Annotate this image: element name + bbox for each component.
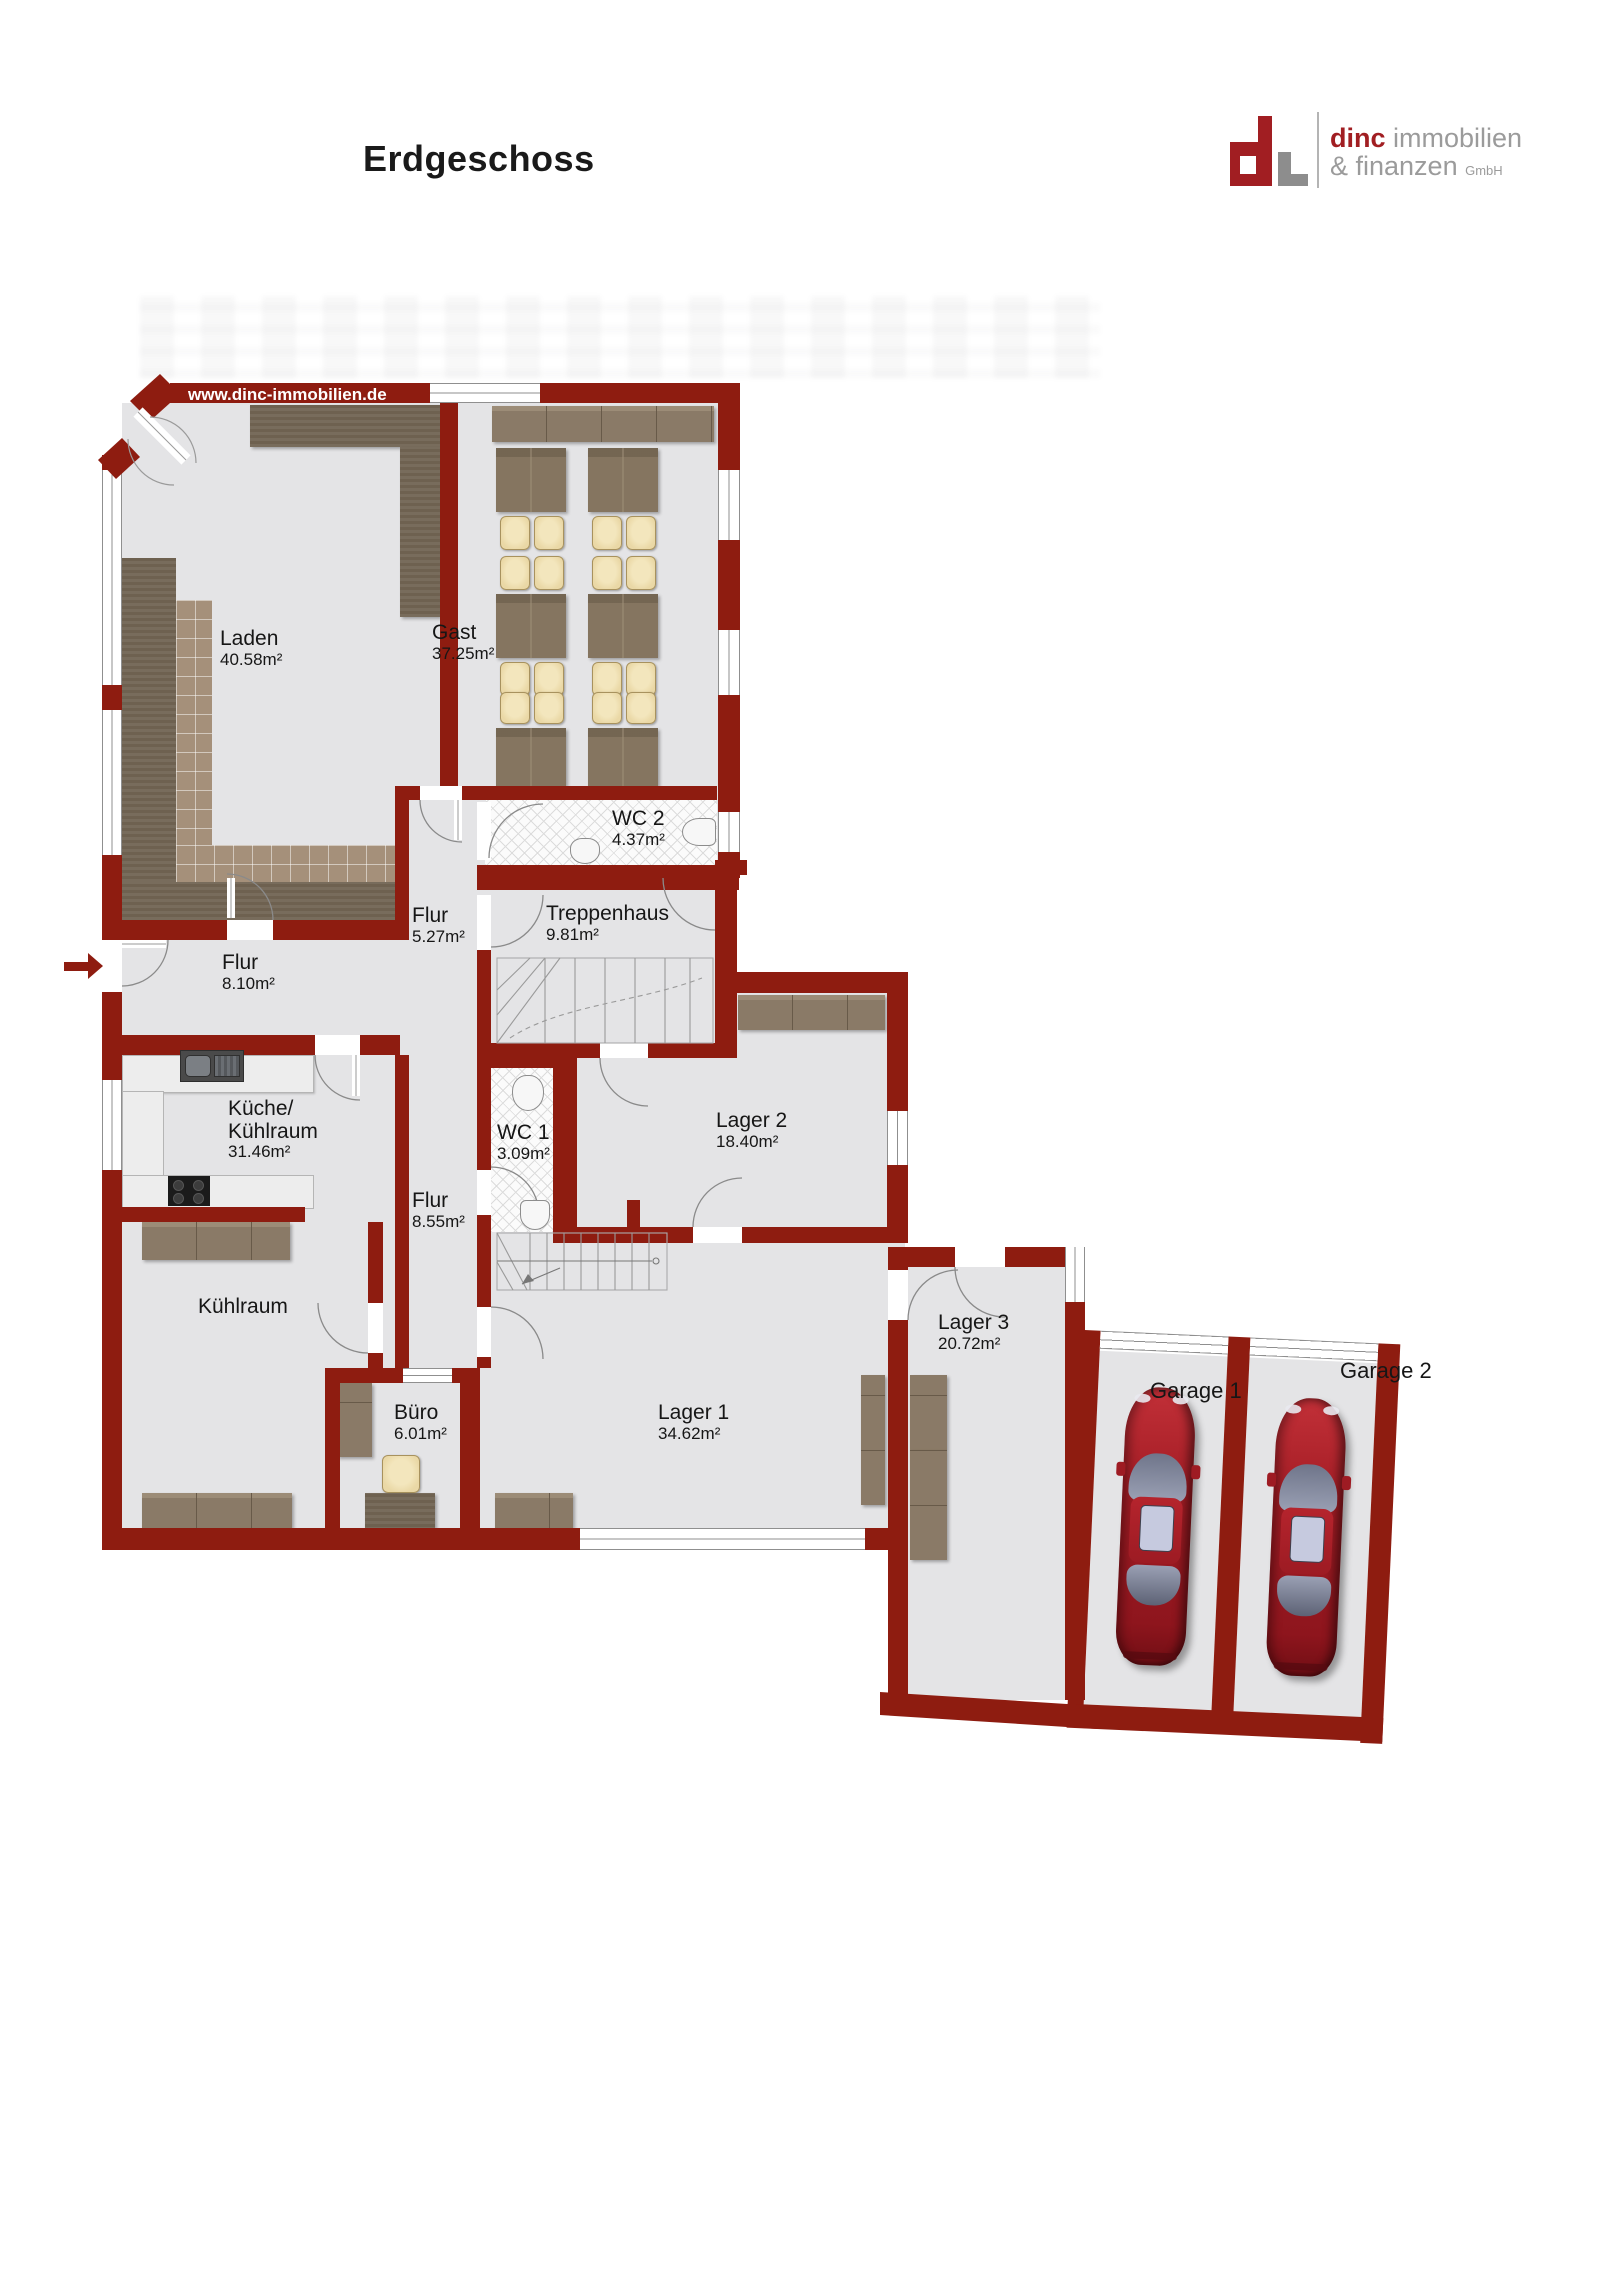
buero-window	[403, 1368, 452, 1383]
room-name: Treppenhaus	[546, 903, 669, 926]
room-label-gast: Gast 37.25m²	[432, 622, 494, 663]
chair	[626, 692, 656, 724]
kitchen-counter-left	[122, 1091, 164, 1177]
wall	[325, 1368, 403, 1383]
logo-suffix: GmbH	[1465, 163, 1503, 178]
room-area: 34.62m²	[658, 1425, 729, 1443]
room-name: Flur	[412, 1190, 465, 1213]
kitchen-sink-unit	[180, 1050, 244, 1082]
chair	[626, 556, 656, 590]
wc1-toilet	[512, 1075, 544, 1111]
sink-basin	[185, 1055, 211, 1077]
logo-brand-rest: immobilien	[1393, 123, 1522, 153]
door-threshold	[315, 1035, 360, 1055]
wall	[553, 1227, 693, 1243]
entry-door-threshold	[102, 940, 122, 992]
room-area: 5.27m²	[412, 928, 465, 946]
wall-buero-right	[460, 1383, 480, 1533]
room-label-kueche: Küche/ Kühlraum 31.46m²	[228, 1098, 318, 1162]
car-mirror	[1191, 1465, 1201, 1479]
chair	[592, 516, 622, 550]
laden-counter-bottom	[122, 882, 400, 920]
wall-buero-left	[325, 1383, 340, 1533]
lager2-cabinet	[738, 995, 885, 1030]
window	[102, 1080, 122, 1170]
window	[887, 1111, 908, 1165]
logo-icon-square-hole	[1240, 156, 1256, 174]
chair	[534, 662, 564, 696]
room-label-flur-eingang: Flur 8.10m²	[222, 952, 275, 993]
room-label-flur-og: Flur 5.27m²	[412, 905, 465, 946]
room-name: Flur	[222, 952, 275, 975]
room-name: Gast	[432, 622, 494, 645]
gast-table	[588, 728, 658, 786]
room-label-garage1: Garage 1	[1150, 1378, 1242, 1404]
wall-wc2-bottom	[477, 865, 739, 890]
chair	[500, 692, 530, 724]
room-name: Laden	[220, 628, 282, 651]
room-area: 31.46m²	[228, 1143, 318, 1161]
buero-chair	[382, 1455, 420, 1493]
room-name: Büro	[394, 1402, 447, 1425]
room-area: 9.81m²	[546, 926, 669, 944]
sink-drainer	[214, 1055, 240, 1077]
laden-counter-left	[122, 558, 176, 882]
window	[1065, 1247, 1085, 1302]
wc2-sink	[570, 838, 600, 864]
wall-wc1-right	[553, 1055, 577, 1232]
room-name: WC 2	[612, 808, 665, 831]
logo-line2: & finanzen	[1330, 151, 1458, 181]
wall	[865, 1528, 888, 1550]
car	[1265, 1397, 1348, 1678]
wall-lager1-lager3	[888, 1320, 908, 1710]
garage-block	[1066, 1322, 1425, 1757]
lager3-shelf-a	[910, 1375, 947, 1450]
logo-icon-l-foot	[1278, 174, 1308, 186]
chair	[534, 692, 564, 724]
burner	[173, 1193, 184, 1204]
wc1-sink	[520, 1200, 550, 1230]
chair	[500, 556, 530, 590]
wall	[462, 786, 717, 800]
chair	[534, 556, 564, 590]
gast-table	[588, 594, 658, 658]
wall	[452, 1368, 480, 1383]
window	[430, 383, 540, 403]
gast-table	[496, 728, 566, 786]
chair	[592, 662, 622, 696]
wall-treppenhaus-right	[715, 860, 737, 1043]
buero-desk	[365, 1493, 435, 1530]
door-threshold	[227, 920, 273, 940]
logo-brand: dinc	[1330, 123, 1386, 153]
room-area: 20.72m²	[938, 1335, 1009, 1353]
room-label-kuehlraum: Kühlraum	[198, 1296, 288, 1319]
company-logo-icon	[1230, 116, 1300, 188]
wall	[485, 1043, 600, 1058]
wall	[718, 695, 740, 812]
door-threshold	[420, 786, 462, 800]
gast-wall-cabinets	[492, 406, 714, 442]
wall-kueche-kuehlraum	[102, 1207, 305, 1222]
wall	[742, 1227, 908, 1243]
faded-artifact-band	[140, 296, 1100, 378]
watermark-url: www.dinc-immobilien.de	[188, 385, 387, 405]
wall	[368, 1353, 383, 1368]
wall-lager3-right	[1065, 1302, 1085, 1700]
wall	[102, 920, 227, 940]
chair	[500, 516, 530, 550]
gast-table	[496, 594, 566, 658]
wall	[102, 992, 122, 1080]
company-logo-text: dinc immobilien & finanzen GmbH	[1330, 124, 1522, 181]
room-area: 3.09m²	[497, 1145, 550, 1163]
wall-lager2-top	[737, 972, 908, 993]
kuehlraum-shelf-top	[142, 1222, 290, 1260]
gast-table	[588, 448, 658, 512]
wall	[273, 920, 409, 940]
chair	[626, 516, 656, 550]
room-name: Lager 2	[716, 1110, 787, 1133]
room-area: 8.10m²	[222, 975, 275, 993]
room-label-flur-mitte: Flur 8.55m²	[412, 1190, 465, 1231]
wall-south	[102, 1528, 580, 1550]
laden-counter-top	[250, 405, 450, 447]
room-label-buero: Büro 6.01m²	[394, 1402, 447, 1443]
room-area: 6.01m²	[394, 1425, 447, 1443]
room-area: 4.37m²	[612, 831, 665, 849]
gast-table	[496, 448, 566, 512]
door-threshold	[477, 802, 491, 860]
door-threshold	[477, 1170, 491, 1215]
room-name: Küche/	[228, 1098, 318, 1121]
door-threshold	[693, 1227, 742, 1243]
wall	[477, 1215, 491, 1307]
room-label-garage2: Garage 2	[1340, 1358, 1432, 1384]
room-label-wc1: WC 1 3.09m²	[497, 1122, 550, 1163]
window	[718, 630, 740, 695]
wall-corridor-left	[395, 1055, 409, 1368]
burner	[193, 1193, 204, 1204]
wall	[888, 1247, 908, 1270]
chair	[626, 662, 656, 696]
lager3-shelf-b	[910, 1450, 947, 1560]
car	[1115, 1386, 1198, 1667]
window	[718, 812, 740, 852]
laden-tile-band-bottom	[176, 845, 400, 882]
room-name2: Kühlraum	[228, 1121, 318, 1144]
window	[102, 470, 122, 685]
room-label-laden: Laden 40.58m²	[220, 628, 282, 669]
burner	[173, 1180, 184, 1191]
door-threshold	[368, 1303, 383, 1353]
wall	[540, 383, 740, 403]
kuehlraum-bench	[142, 1493, 292, 1528]
wall	[395, 786, 420, 800]
wall	[102, 455, 122, 470]
lager1-shelf	[495, 1493, 573, 1528]
wall	[477, 1055, 491, 1170]
car-headlight	[1134, 1393, 1150, 1403]
room-name: Flur	[412, 905, 465, 928]
window	[102, 710, 122, 855]
wall	[718, 540, 740, 630]
door-threshold	[955, 1247, 1005, 1267]
car-sunroof	[1139, 1505, 1175, 1552]
shop-window	[580, 1528, 865, 1550]
car-sunroof	[1289, 1516, 1325, 1563]
page-title: Erdgeschoss	[363, 138, 595, 180]
wall	[477, 1357, 491, 1368]
laden-tile-band-left	[176, 600, 212, 845]
chair	[592, 692, 622, 724]
room-label-treppenhaus: Treppenhaus 9.81m²	[546, 903, 669, 944]
room-label-lager1: Lager 1 34.62m²	[658, 1402, 729, 1443]
lager1-wall-shelf	[861, 1375, 885, 1505]
wall-laden-gast	[440, 403, 458, 786]
wall	[395, 800, 409, 920]
room-name: Kühlraum	[198, 1296, 288, 1319]
burner	[193, 1180, 204, 1191]
car-mirror	[1342, 1476, 1352, 1490]
wc2-toilet	[682, 818, 716, 846]
entry-arrow-icon	[88, 953, 103, 979]
wall	[477, 947, 491, 1055]
car-mirror	[1116, 1462, 1126, 1476]
room-label-lager2: Lager 2 18.40m²	[716, 1110, 787, 1151]
room-name: Lager 1	[658, 1402, 729, 1425]
buero-cabinet	[337, 1383, 372, 1457]
wall	[368, 1222, 383, 1303]
door-threshold	[600, 1043, 648, 1058]
laden-counter-return	[400, 447, 440, 617]
car-mirror	[1267, 1472, 1277, 1486]
room-label-lager3: Lager 3 20.72m²	[938, 1312, 1009, 1353]
chair	[534, 516, 564, 550]
wall	[887, 993, 908, 1111]
room-name: Lager 3	[938, 1312, 1009, 1335]
wall	[887, 1165, 908, 1232]
wall	[360, 1035, 400, 1055]
kitchen-counter-bottom	[122, 1175, 314, 1209]
door-threshold	[477, 1307, 491, 1357]
door-threshold	[477, 895, 491, 950]
chair	[500, 662, 530, 696]
stove	[168, 1176, 210, 1206]
wall	[102, 1170, 122, 1528]
room-label-wc2: WC 2 4.37m²	[612, 808, 665, 849]
room-area: 18.40m²	[716, 1133, 787, 1151]
logo-divider	[1317, 112, 1319, 188]
wall	[648, 1043, 737, 1058]
chair	[592, 556, 622, 590]
wall	[102, 685, 122, 710]
room-area: 40.58m²	[220, 651, 282, 669]
wall	[718, 403, 740, 470]
entry-arrow-shaft	[64, 962, 90, 971]
door-threshold	[888, 1270, 908, 1320]
room-area: 37.25m²	[432, 645, 494, 663]
room-area: 8.55m²	[412, 1213, 465, 1231]
room-name: WC 1	[497, 1122, 550, 1145]
window	[718, 470, 740, 540]
wall	[908, 1247, 955, 1267]
